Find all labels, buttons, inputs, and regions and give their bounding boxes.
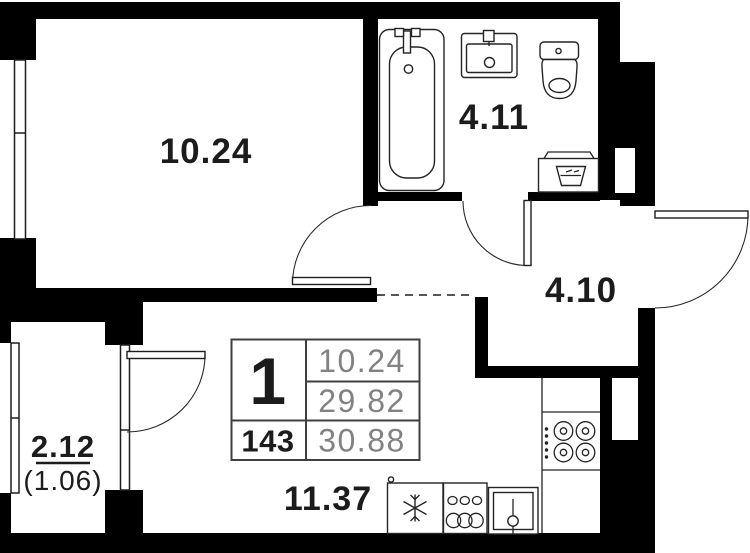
wall-top (0, 2, 620, 19)
wall-balcony-right-upper (105, 300, 143, 345)
ventilation-shaft-kitchen (612, 378, 638, 440)
wall-bathroom-bottom-right (528, 192, 600, 201)
wall-bathroom-bottom-left (378, 192, 462, 201)
room-count-value: 1 (249, 344, 286, 418)
toilet-icon (540, 42, 579, 99)
wall-top-left-block (0, 2, 36, 60)
kitchen-area-label: 11.37 (284, 480, 372, 518)
area-value-bottom: 30.88 (318, 423, 406, 459)
area-value-top: 10.24 (318, 343, 406, 379)
wall-left-mid-block (0, 238, 36, 302)
bathroom-sink-icon (462, 31, 518, 78)
apartment-number-value: 143 (241, 424, 294, 459)
bedroom-window (15, 60, 26, 239)
wall-kitchen-nook-left (475, 297, 488, 378)
ventilation-shaft-upper (615, 148, 635, 193)
wall-bedroom-bottom (33, 288, 377, 302)
cookware-cabinet-icon (444, 483, 488, 534)
bathroom-door-leaf (524, 201, 531, 266)
wall-kitchen-nook-top (475, 366, 655, 378)
area-value-middle: 29.82 (318, 383, 406, 419)
floor-plan-canvas: 10.24 4.11 4.10 11.37 2.12 (1.06) 1 143 … (0, 0, 750, 553)
wall-balcony-right-lower (105, 490, 143, 533)
balcony-door-leaf (127, 352, 205, 359)
entrance-door-leaf (655, 211, 748, 218)
floor-plan: 10.24 4.11 4.10 11.37 2.12 (1.06) 1 143 … (0, 0, 750, 553)
info-table: 1 143 10.24 29.82 30.88 (232, 340, 420, 461)
wall-balcony-left-upper (0, 322, 11, 343)
wall-bottom (0, 533, 655, 553)
balcony-area-label: 2.12 (31, 429, 95, 464)
bedroom-door-leaf (293, 278, 371, 285)
bathtub-icon (380, 29, 445, 191)
balcony-coefficient-label: (1.06) (23, 465, 102, 496)
wall-entrance-side (638, 308, 655, 378)
bedroom-area-label: 10.24 (160, 132, 253, 171)
kitchen-sink-icon (489, 488, 539, 535)
wall-balcony-left-lower (0, 493, 11, 533)
washing-machine-icon (539, 152, 599, 192)
balcony-door-window (121, 345, 130, 490)
bathroom-area-label: 4.11 (459, 98, 529, 137)
hallway-area-label: 4.10 (545, 271, 617, 310)
wall-bedroom-right (363, 18, 378, 206)
fridge-icon (388, 477, 444, 534)
